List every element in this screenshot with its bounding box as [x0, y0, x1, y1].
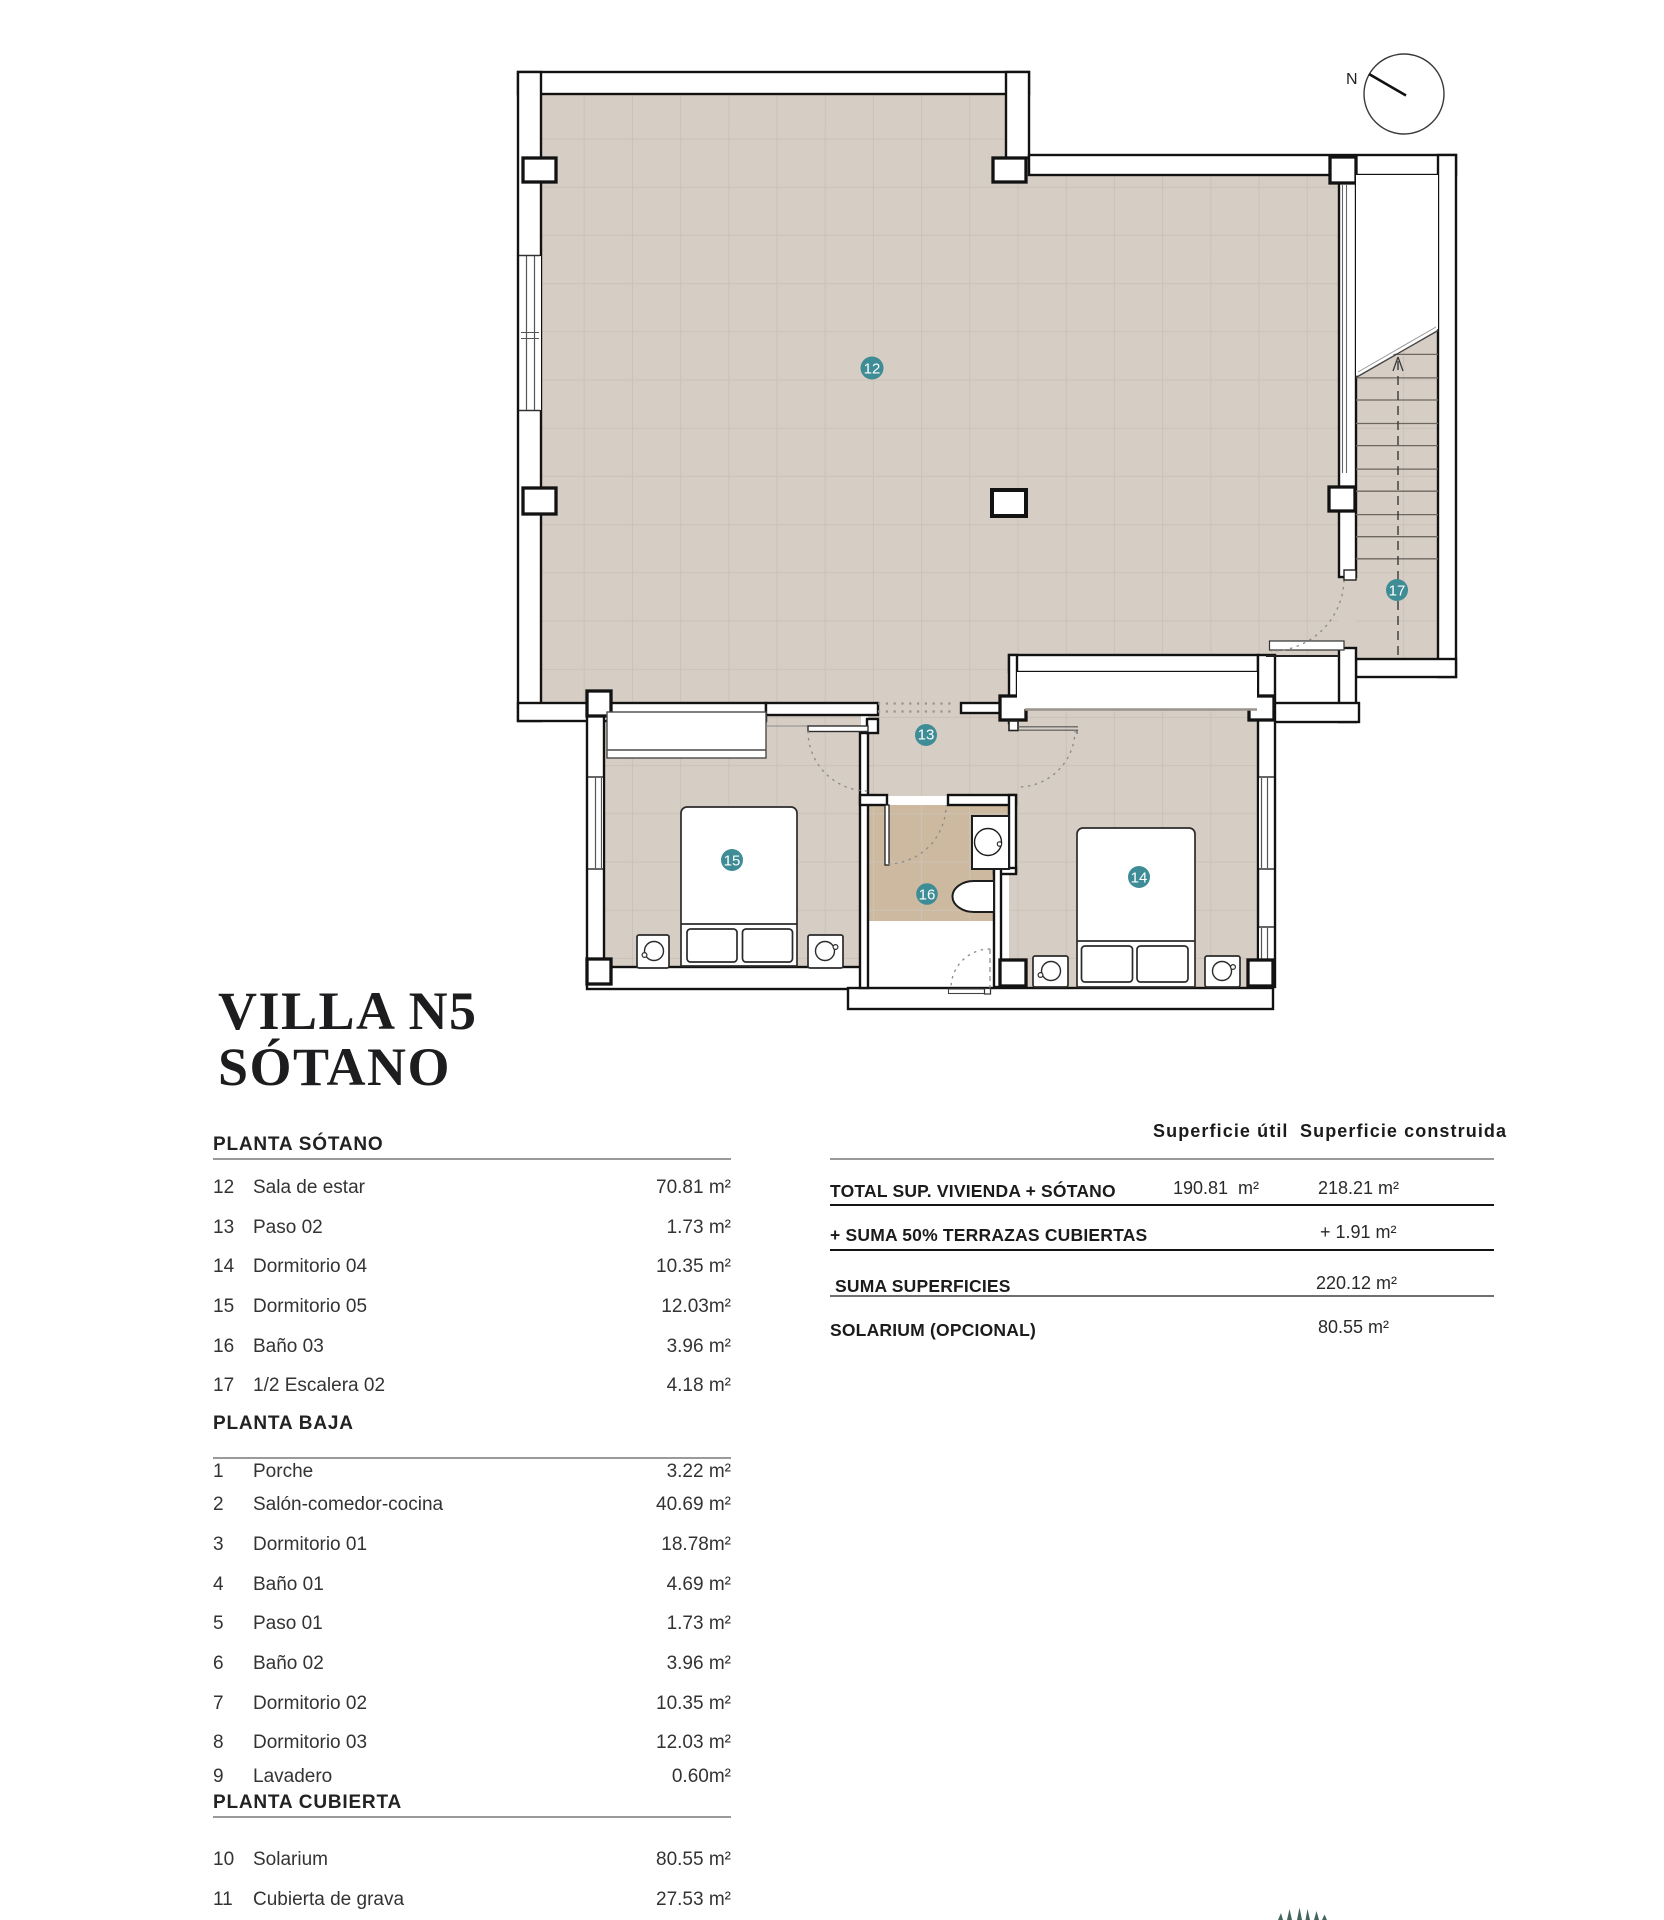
svg-text:16: 16 [919, 887, 936, 904]
svg-text:12: 12 [864, 361, 881, 378]
svg-text:15: 15 [724, 853, 741, 870]
svg-text:13: 13 [918, 727, 935, 744]
svg-text:N: N [1346, 71, 1358, 88]
svg-text:14: 14 [1131, 870, 1148, 887]
svg-text:17: 17 [1389, 583, 1406, 600]
